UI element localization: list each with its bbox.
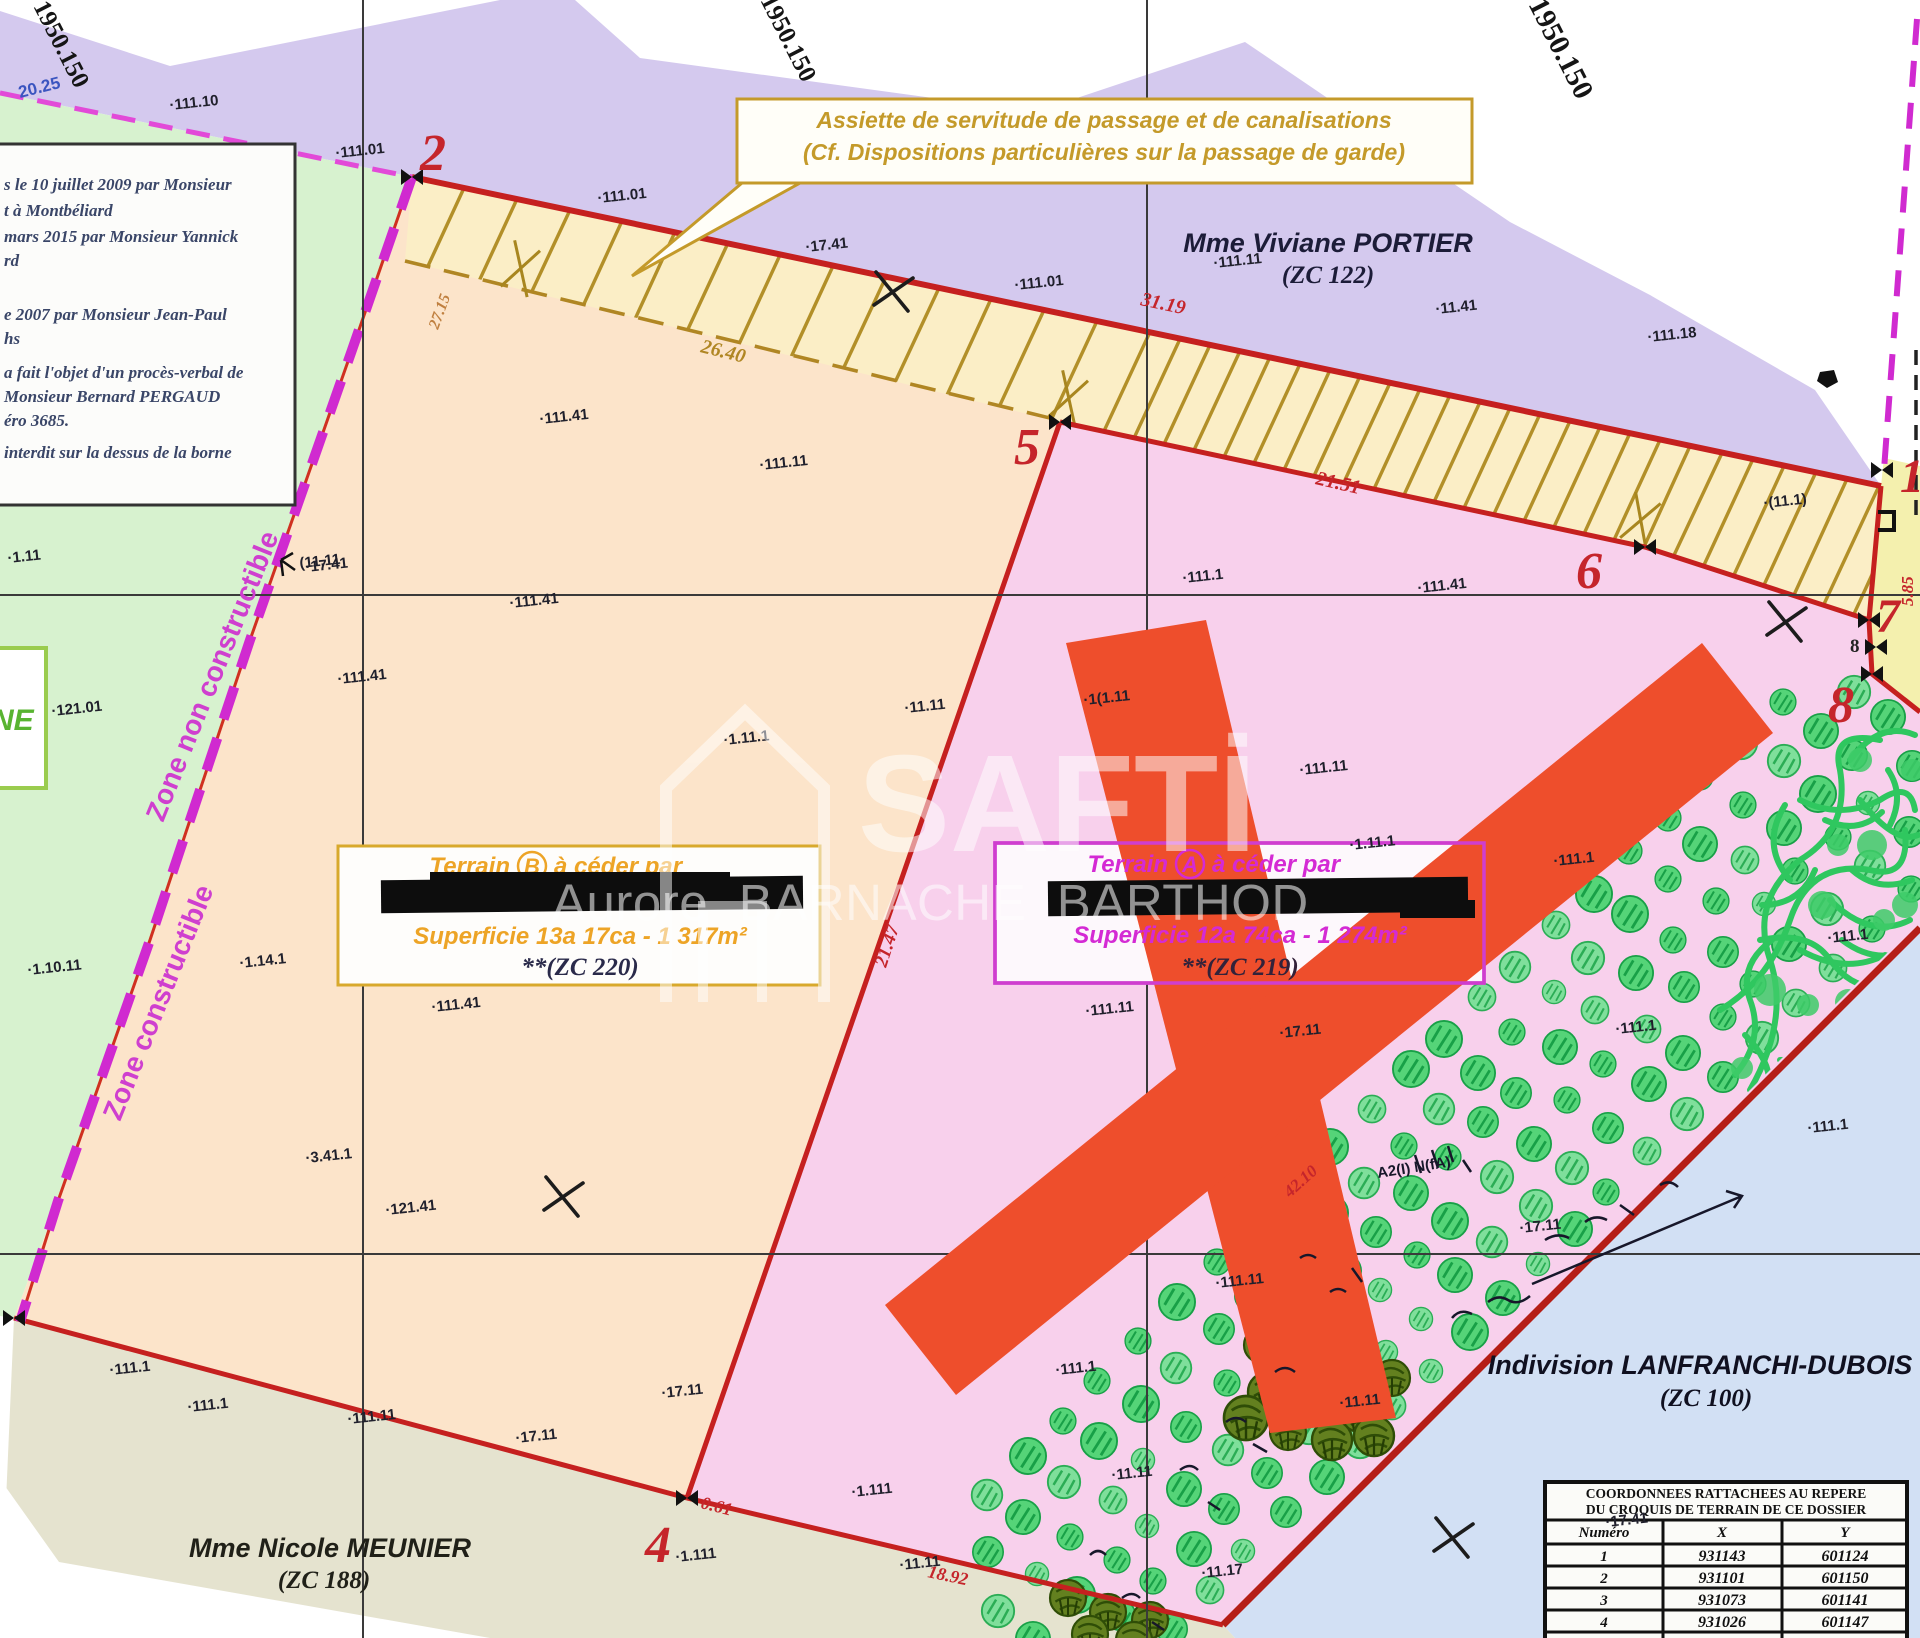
svg-text:4: 4 bbox=[1599, 1615, 1608, 1631]
svg-text:601150: 601150 bbox=[1821, 1570, 1868, 1587]
svg-text:2: 2 bbox=[1599, 1571, 1608, 1587]
svg-text:2: 2 bbox=[419, 125, 446, 182]
svg-text:Mme Nicole MEUNIER: Mme Nicole MEUNIER bbox=[189, 1533, 472, 1563]
svg-text:X: X bbox=[1716, 1525, 1728, 1541]
svg-text:hs: hs bbox=[4, 329, 20, 348]
svg-text:rd: rd bbox=[4, 251, 20, 270]
svg-text:interdit sur la dessus de la b: interdit sur la dessus de la borne bbox=[4, 443, 232, 462]
svg-text:**(ZC 220): **(ZC 220) bbox=[521, 954, 638, 981]
svg-text:5.85: 5.85 bbox=[1898, 576, 1917, 606]
svg-text:e 2007 par Monsieur Jean-Paul: e 2007 par Monsieur Jean-Paul bbox=[4, 305, 227, 324]
svg-text:t à Montbéliard: t à Montbéliard bbox=[4, 201, 113, 220]
svg-text:8: 8 bbox=[1850, 636, 1860, 657]
svg-text:931101: 931101 bbox=[1698, 1570, 1745, 1587]
svg-text:(ZC 188): (ZC 188) bbox=[278, 1567, 370, 1594]
svg-text:6: 6 bbox=[1576, 543, 1602, 600]
svg-text:·1.11: ·1.11 bbox=[7, 547, 42, 567]
svg-text:Monsieur Bernard PERGAUD: Monsieur Bernard PERGAUD bbox=[3, 387, 220, 406]
svg-text:(Cf. Dispositions particulière: (Cf. Dispositions particulières sur la p… bbox=[803, 139, 1405, 165]
svg-text:NE: NE bbox=[0, 704, 35, 737]
svg-text:3: 3 bbox=[1599, 1593, 1608, 1609]
svg-text:1: 1 bbox=[1900, 450, 1920, 503]
svg-text:Assiette de servitude de passa: Assiette de servitude de passage et de c… bbox=[815, 107, 1391, 133]
svg-text:(ZC 122): (ZC 122) bbox=[1282, 262, 1374, 289]
svg-text:éro 3685.: éro 3685. bbox=[4, 411, 69, 430]
svg-text:5: 5 bbox=[1014, 419, 1040, 476]
svg-text:mars 2015 par Monsieur Yannick: mars 2015 par Monsieur Yannick bbox=[4, 227, 239, 246]
svg-text:1: 1 bbox=[1600, 1549, 1608, 1565]
svg-text:**(ZC 219): **(ZC 219) bbox=[1181, 954, 1298, 981]
svg-text:601124: 601124 bbox=[1821, 1548, 1868, 1565]
svg-text:601141: 601141 bbox=[1821, 1592, 1868, 1609]
svg-text:a fait l'objet d'un procès-ver: a fait l'objet d'un procès-verbal de bbox=[4, 363, 244, 382]
svg-text:601147: 601147 bbox=[1821, 1614, 1869, 1631]
svg-text:s le 10 juillet 2009 par Monsi: s le 10 juillet 2009 par Monsieur bbox=[3, 175, 232, 194]
svg-text:COORDONNEES RATTACHEES AU REPE: COORDONNEES RATTACHEES AU REPERE bbox=[1586, 1486, 1866, 1501]
svg-text:SAFTİ: SAFTİ bbox=[858, 727, 1257, 881]
svg-text:931073: 931073 bbox=[1698, 1592, 1746, 1609]
svg-text:4: 4 bbox=[644, 1517, 671, 1574]
svg-text:Aurore BARNACHE BARTHOD: Aurore BARNACHE BARTHOD bbox=[552, 874, 1309, 931]
svg-text:8: 8 bbox=[1828, 677, 1854, 734]
svg-text:931026: 931026 bbox=[1698, 1614, 1746, 1631]
svg-text:931143: 931143 bbox=[1698, 1548, 1745, 1565]
svg-text:(ZC 100): (ZC 100) bbox=[1660, 1385, 1752, 1412]
svg-text:Indivision LANFRANCHI-DUBOIS: Indivision LANFRANCHI-DUBOIS bbox=[1488, 1350, 1913, 1380]
